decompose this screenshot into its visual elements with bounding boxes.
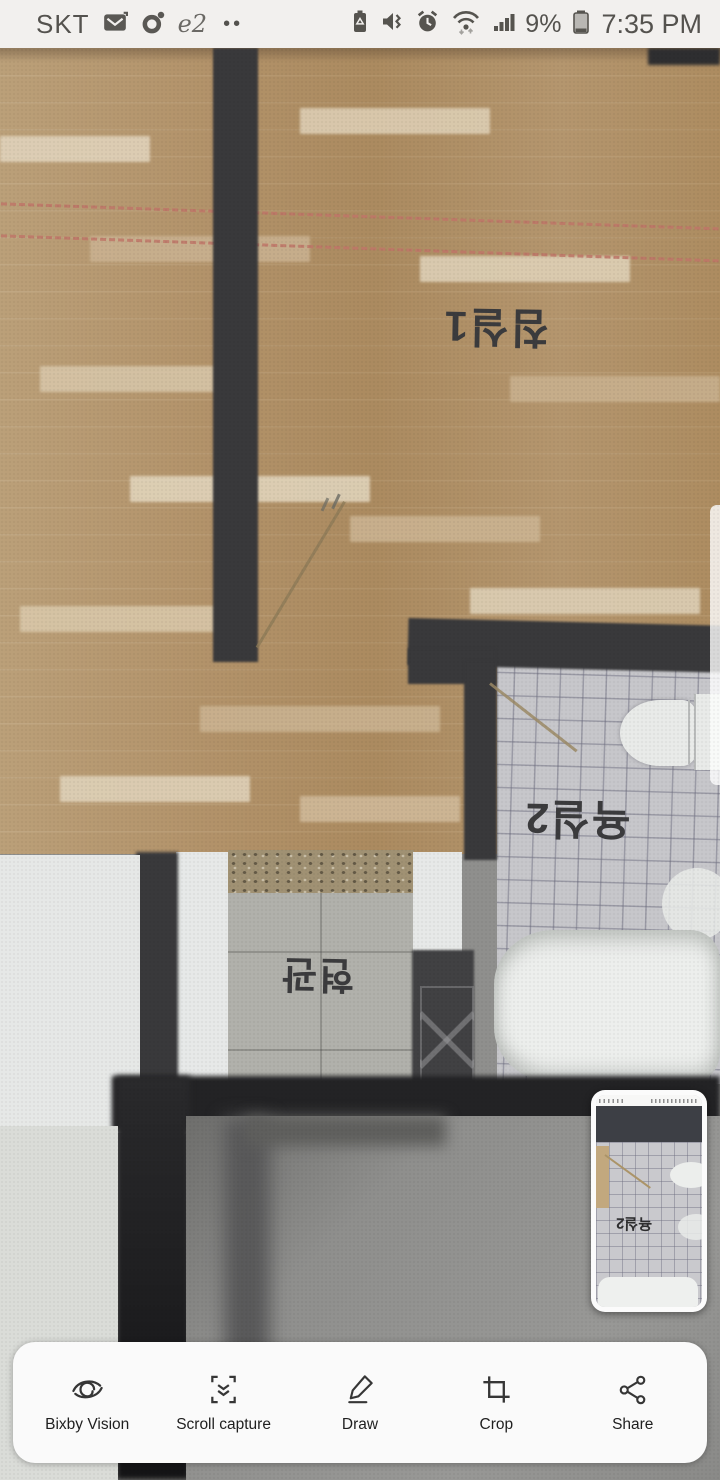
room-label-bathroom2: 욕실2 [523,791,631,854]
scroll-capture-icon [206,1372,241,1407]
crop-label: Crop [480,1416,514,1434]
share-label: Share [612,1416,653,1434]
clock-label: 7:35 PM [601,9,702,40]
thumbnail-fixture [678,1214,702,1240]
draw-icon [342,1372,377,1407]
bixby-vision-icon [70,1372,105,1407]
room-label-entrance: 현관 [280,950,355,1006]
draw-label: Draw [342,1416,378,1434]
blur-smear [224,1118,270,1358]
bixby-vision-button[interactable]: Bixby Vision [37,1372,137,1434]
alarm-icon [414,8,441,40]
battery-saver-icon [348,8,372,40]
blur-smear-2 [246,1116,446,1146]
thumbnail-wall-band [596,1106,702,1142]
thumbnail-bathroom-tiles: 욕실2 [596,1142,702,1307]
room-label-bedroom1: 침실1 [442,299,550,362]
bixby-vision-label: Bixby Vision [45,1416,129,1434]
wifi-icon [449,8,483,41]
thumbnail-door-line [604,1154,650,1189]
more-notifications-dots: •• [223,13,243,36]
screenshot-thumbnail[interactable]: 욕실2 [591,1090,707,1312]
dark-corner-patch [648,48,720,65]
thumbnail-image: 욕실2 [596,1095,702,1307]
share-icon [615,1372,650,1407]
battery-icon [569,8,593,41]
photo-top-shadow [0,48,720,62]
thumbnail-toilet [670,1162,702,1188]
bathtub-fixture [494,930,720,1082]
scroll-capture-label: Scroll capture [176,1416,271,1434]
crop-icon [479,1372,514,1407]
share-button[interactable]: Share [583,1372,683,1434]
phone-screen: SKT e2 •• 9 [0,0,720,1480]
thumbnail-room-label: 욕실2 [616,1213,652,1235]
status-bar-right: 9% 7:35 PM [348,8,720,41]
scroll-capture-button[interactable]: Scroll capture [174,1372,274,1434]
wall-vertical-main [213,48,258,662]
thumbnail-statusbar-icons-left [599,1099,625,1103]
thumbnail-statusbar [596,1095,702,1106]
capture-circle-icon [140,9,168,40]
thumbnail-bathtub [598,1277,698,1307]
thumbnail-statusbar-icons-right [651,1099,699,1103]
bathroom-wall-left [464,660,497,860]
email-icon [100,9,130,40]
status-bar-left: SKT e2 •• [0,9,243,40]
draw-button[interactable]: Draw [310,1372,410,1434]
status-bar: SKT e2 •• 9 [0,0,720,48]
mute-vibrate-icon [380,8,406,40]
carrier-label: SKT [36,9,90,40]
script-notification-icon: e2 [178,10,207,38]
screenshot-toolbar: Bixby Vision Scroll capture Draw [13,1342,707,1463]
crop-button[interactable]: Crop [446,1372,546,1434]
toilet-seam [688,700,690,764]
signal-icon [491,9,517,40]
battery-percent-label: 9% [525,10,561,39]
edge-panel-handle[interactable] [710,505,720,785]
entrance-threshold [228,850,414,894]
